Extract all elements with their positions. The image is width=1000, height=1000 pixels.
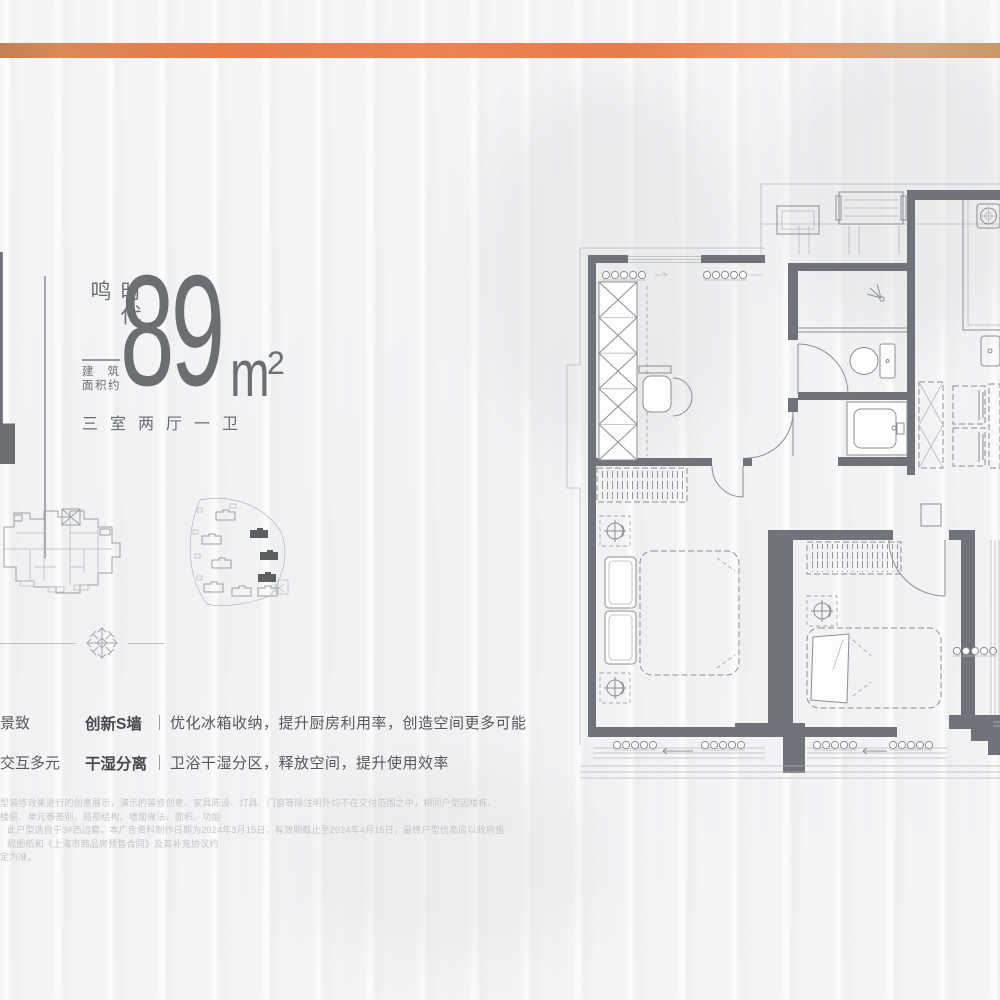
floor-plan-drawing [555,170,1000,800]
snowflake-ornament-icon [84,625,120,661]
poster: 1 时代·鸣 建筑 面积约 89 m 2 三室两厅一卫 [0,0,1000,1000]
feature-description: 卫浴干湿分区，释放空间，提升使用效率 [170,752,449,773]
accent-gradient-bar [0,43,1000,58]
feature-separator: ｜ [152,712,167,733]
feature-description: 优化冰箱收纳，提升厨房利用率，创造空间更多可能 [170,712,527,733]
feature-tag: 交互多元 [0,752,60,773]
disclaimer-line: 此户型选自于3#西边套。本广告资料制作日期为2024年3月15日，有效期截止至2… [0,824,505,851]
feature-title: 干湿分离 [85,752,147,774]
disclaimer-line: 型装修效果进行的创意展示，演示的装修创意、家具陈设、灯具、门窗等除注明外均不在交… [0,797,505,824]
divider-line-right [128,643,164,644]
area-unit: m [230,345,270,401]
layout-text: 三室两厅一卫 [82,410,250,434]
feature-row: 交互多元 干湿分离 ｜ 卫浴干湿分区，释放空间，提升使用效率 [0,752,560,772]
caption-rule [82,359,120,361]
area-superscript: 2 [267,345,285,382]
feature-tag: 景致 [0,712,30,733]
site-plan-drawing [170,492,305,612]
area-value: 89 [120,260,222,402]
feature-row: 景致 创新S墙 ｜ 优化冰箱收纳，提升厨房利用率，创造空间更多可能 [0,712,560,732]
feature-separator: ｜ [152,752,167,773]
disclaimer: 型装修效果进行的创意展示，演示的装修创意、家具陈设、灯具、门窗等除注明外均不在交… [0,797,505,865]
key-plan-drawing [0,493,128,611]
feature-title: 创新S墙 [85,712,142,734]
divider-line-left [0,643,76,644]
disclaimer-line: 定为准。 [0,851,505,865]
